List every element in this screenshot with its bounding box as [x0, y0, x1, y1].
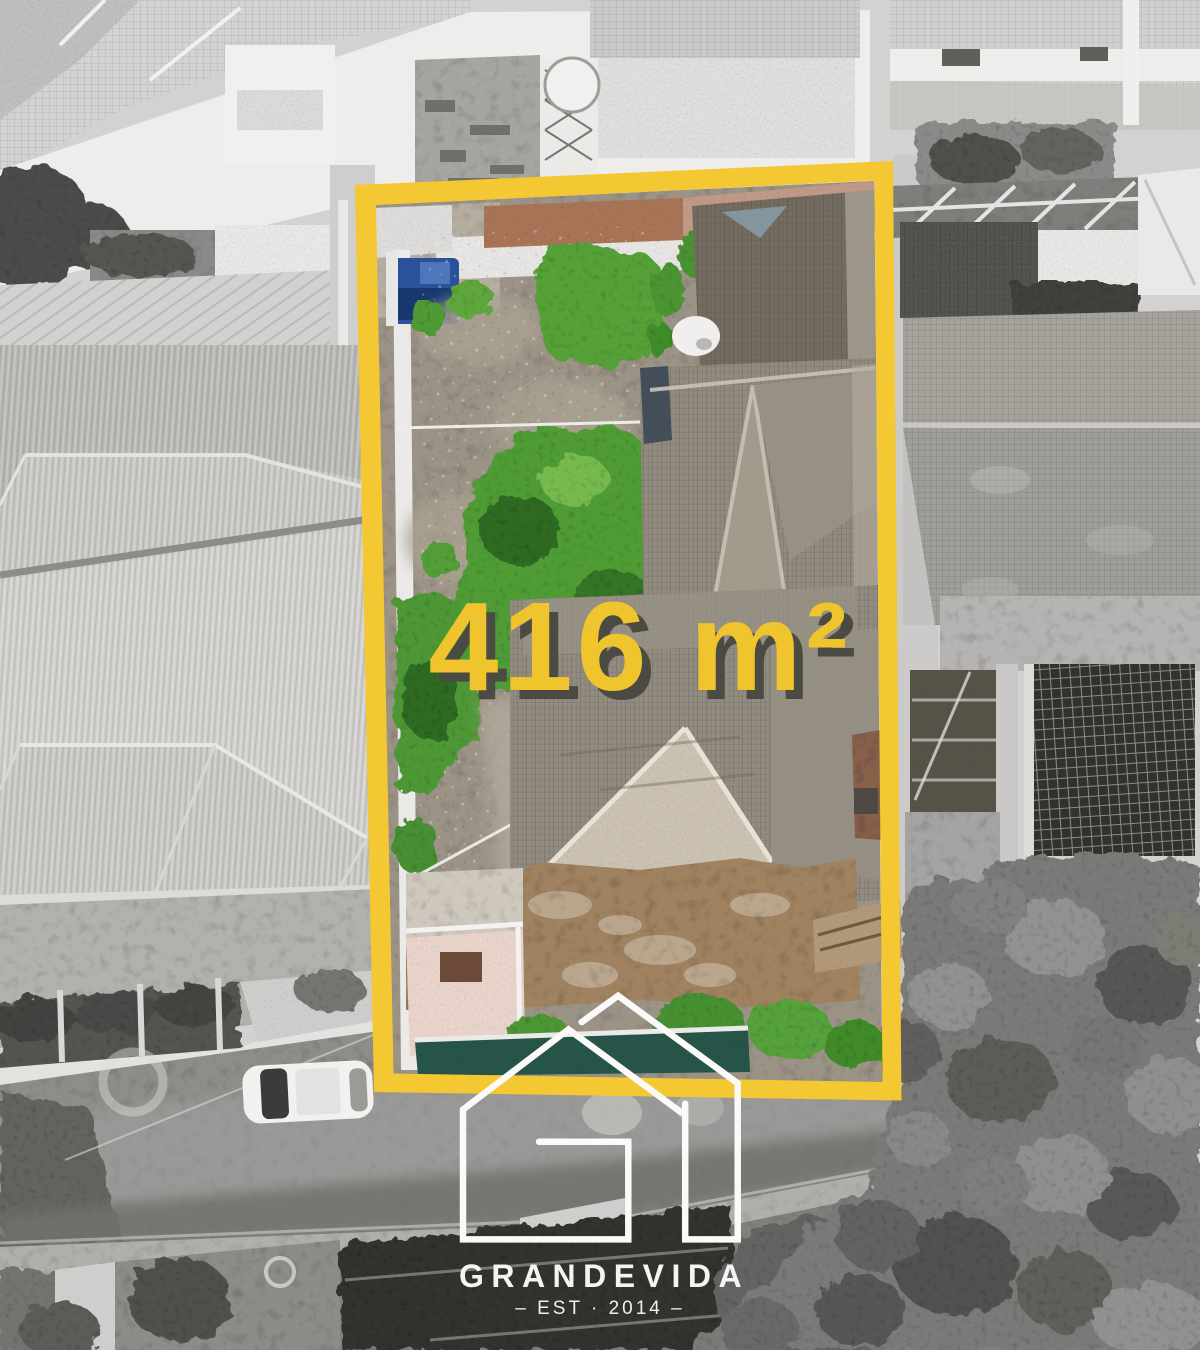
svg-text:– EST · 2014 –: – EST · 2014 – [515, 1298, 684, 1319]
svg-text:GRANDEVIDA: GRANDEVIDA [459, 1258, 749, 1294]
svg-text:416 m²: 416 m² [428, 576, 851, 717]
